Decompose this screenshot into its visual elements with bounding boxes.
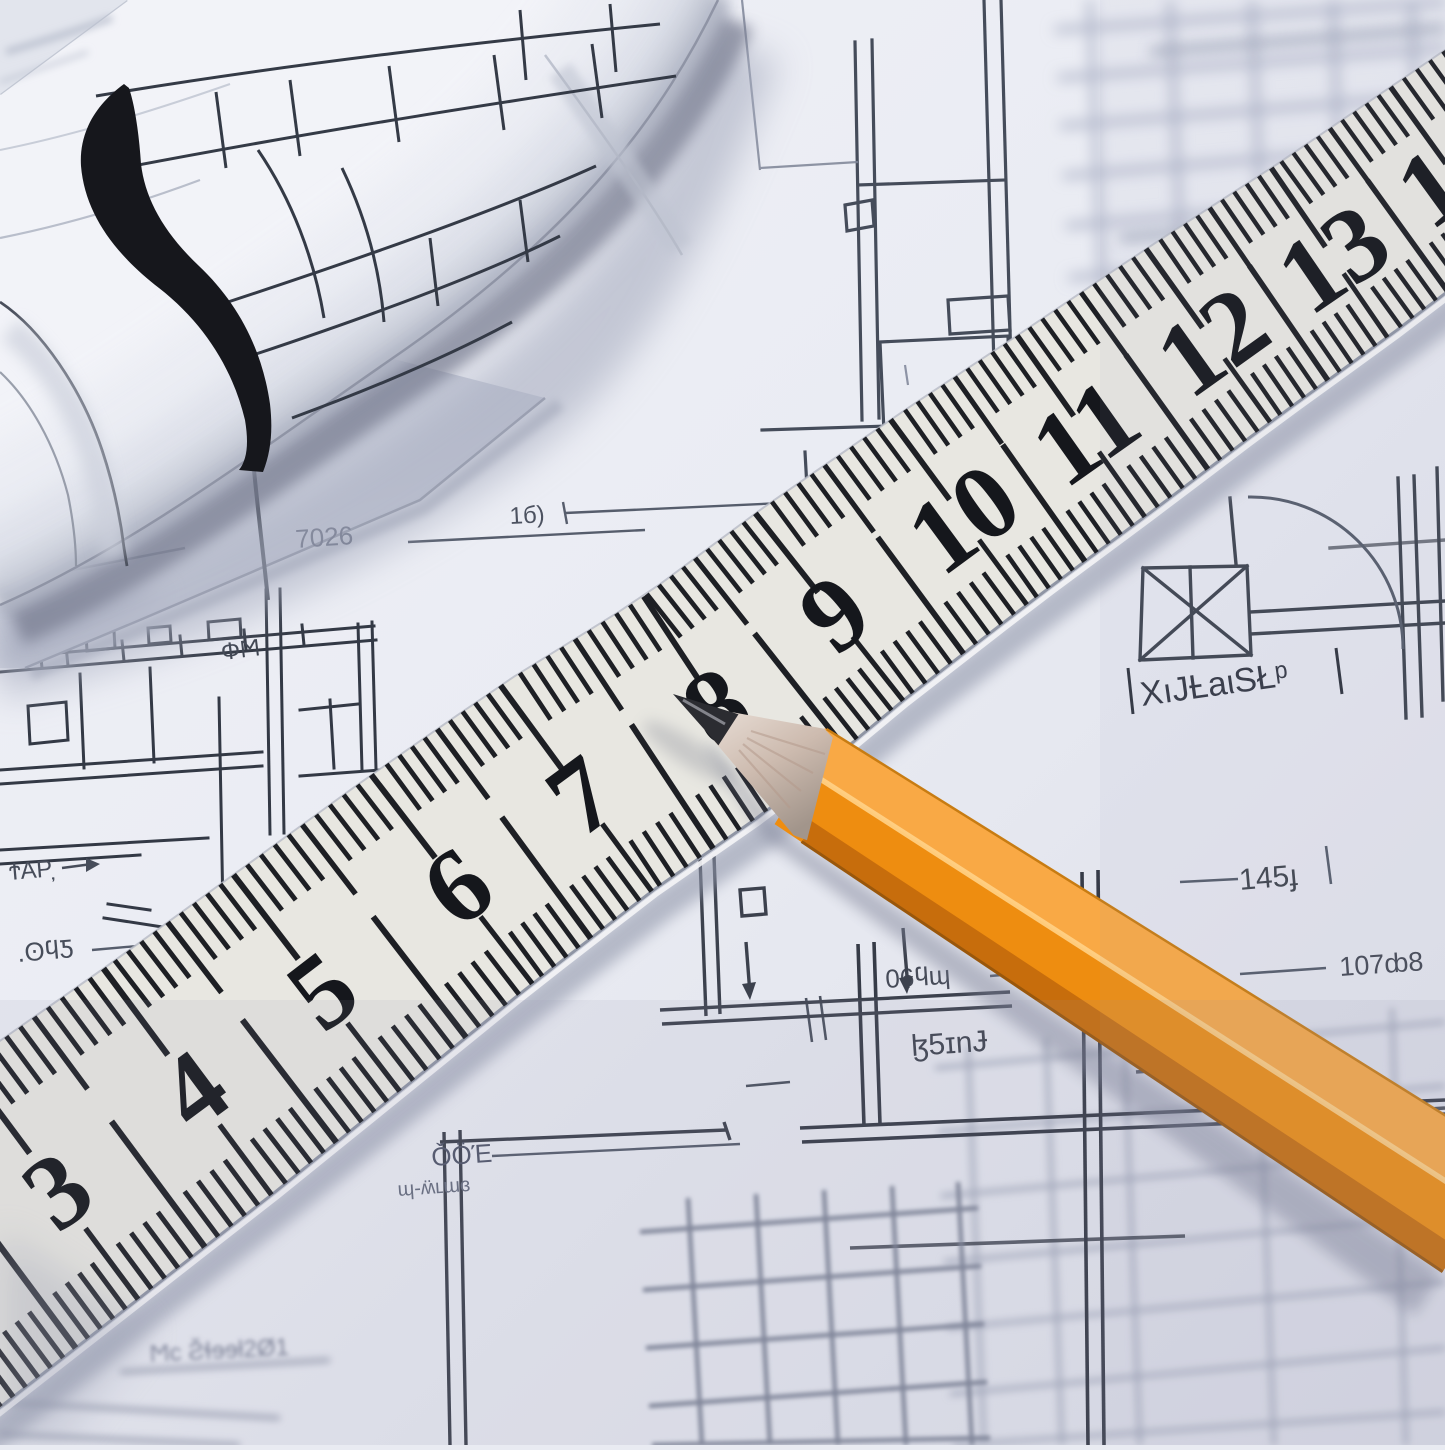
svg-text:ϮΑΡ̦: ϮΑΡ̦ bbox=[8, 855, 55, 886]
svg-text:1б): 1б) bbox=[509, 501, 545, 530]
svg-text:ΦϺ: ΦϺ bbox=[219, 634, 261, 666]
svg-text:.ʘϥƼ: .ʘϥƼ bbox=[16, 933, 75, 968]
